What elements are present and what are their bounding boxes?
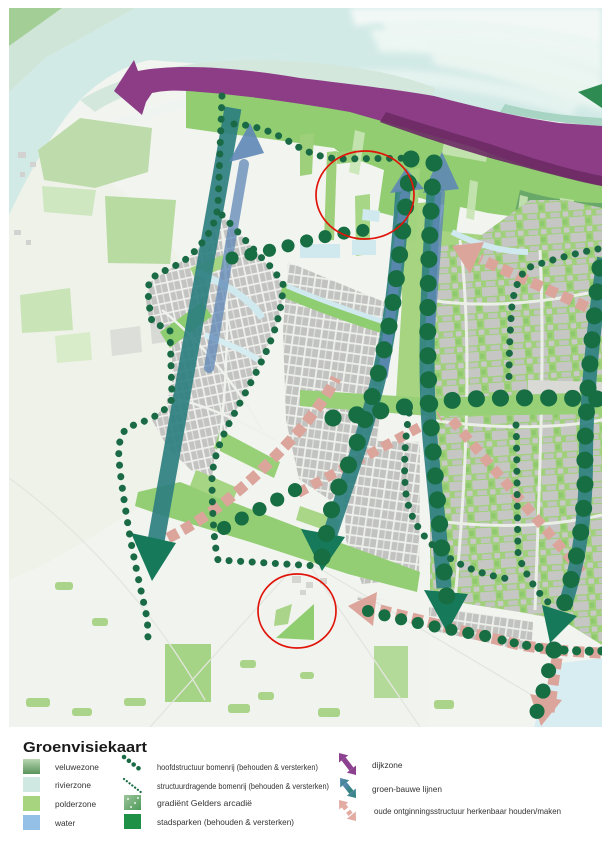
svg-text:dijkzone: dijkzone <box>372 760 403 770</box>
svg-text:structuurdragende bomenrij (be: structuurdragende bomenrij (behouden & v… <box>157 781 329 791</box>
svg-text:hoofdstructuur bomenrij (behou: hoofdstructuur bomenrij (behouden & vers… <box>157 762 318 772</box>
svg-text:gradiënt Gelders arcadië: gradiënt Gelders arcadië <box>157 798 252 808</box>
svg-text:water: water <box>54 818 76 828</box>
svg-text:stadsparken (behouden & verste: stadsparken (behouden & versterken) <box>157 817 294 827</box>
svg-text:oude ontginningsstructuur herk: oude ontginningsstructuur herkenbaar hou… <box>374 806 561 816</box>
svg-text:Groenvisiekaart: Groenvisiekaart <box>23 740 147 756</box>
svg-text:groen-bauwe lijnen: groen-bauwe lijnen <box>372 784 442 794</box>
svg-text:rivierzone: rivierzone <box>55 780 91 790</box>
svg-text:polderzone: polderzone <box>55 799 96 809</box>
svg-text:veluwezone: veluwezone <box>55 762 99 772</box>
